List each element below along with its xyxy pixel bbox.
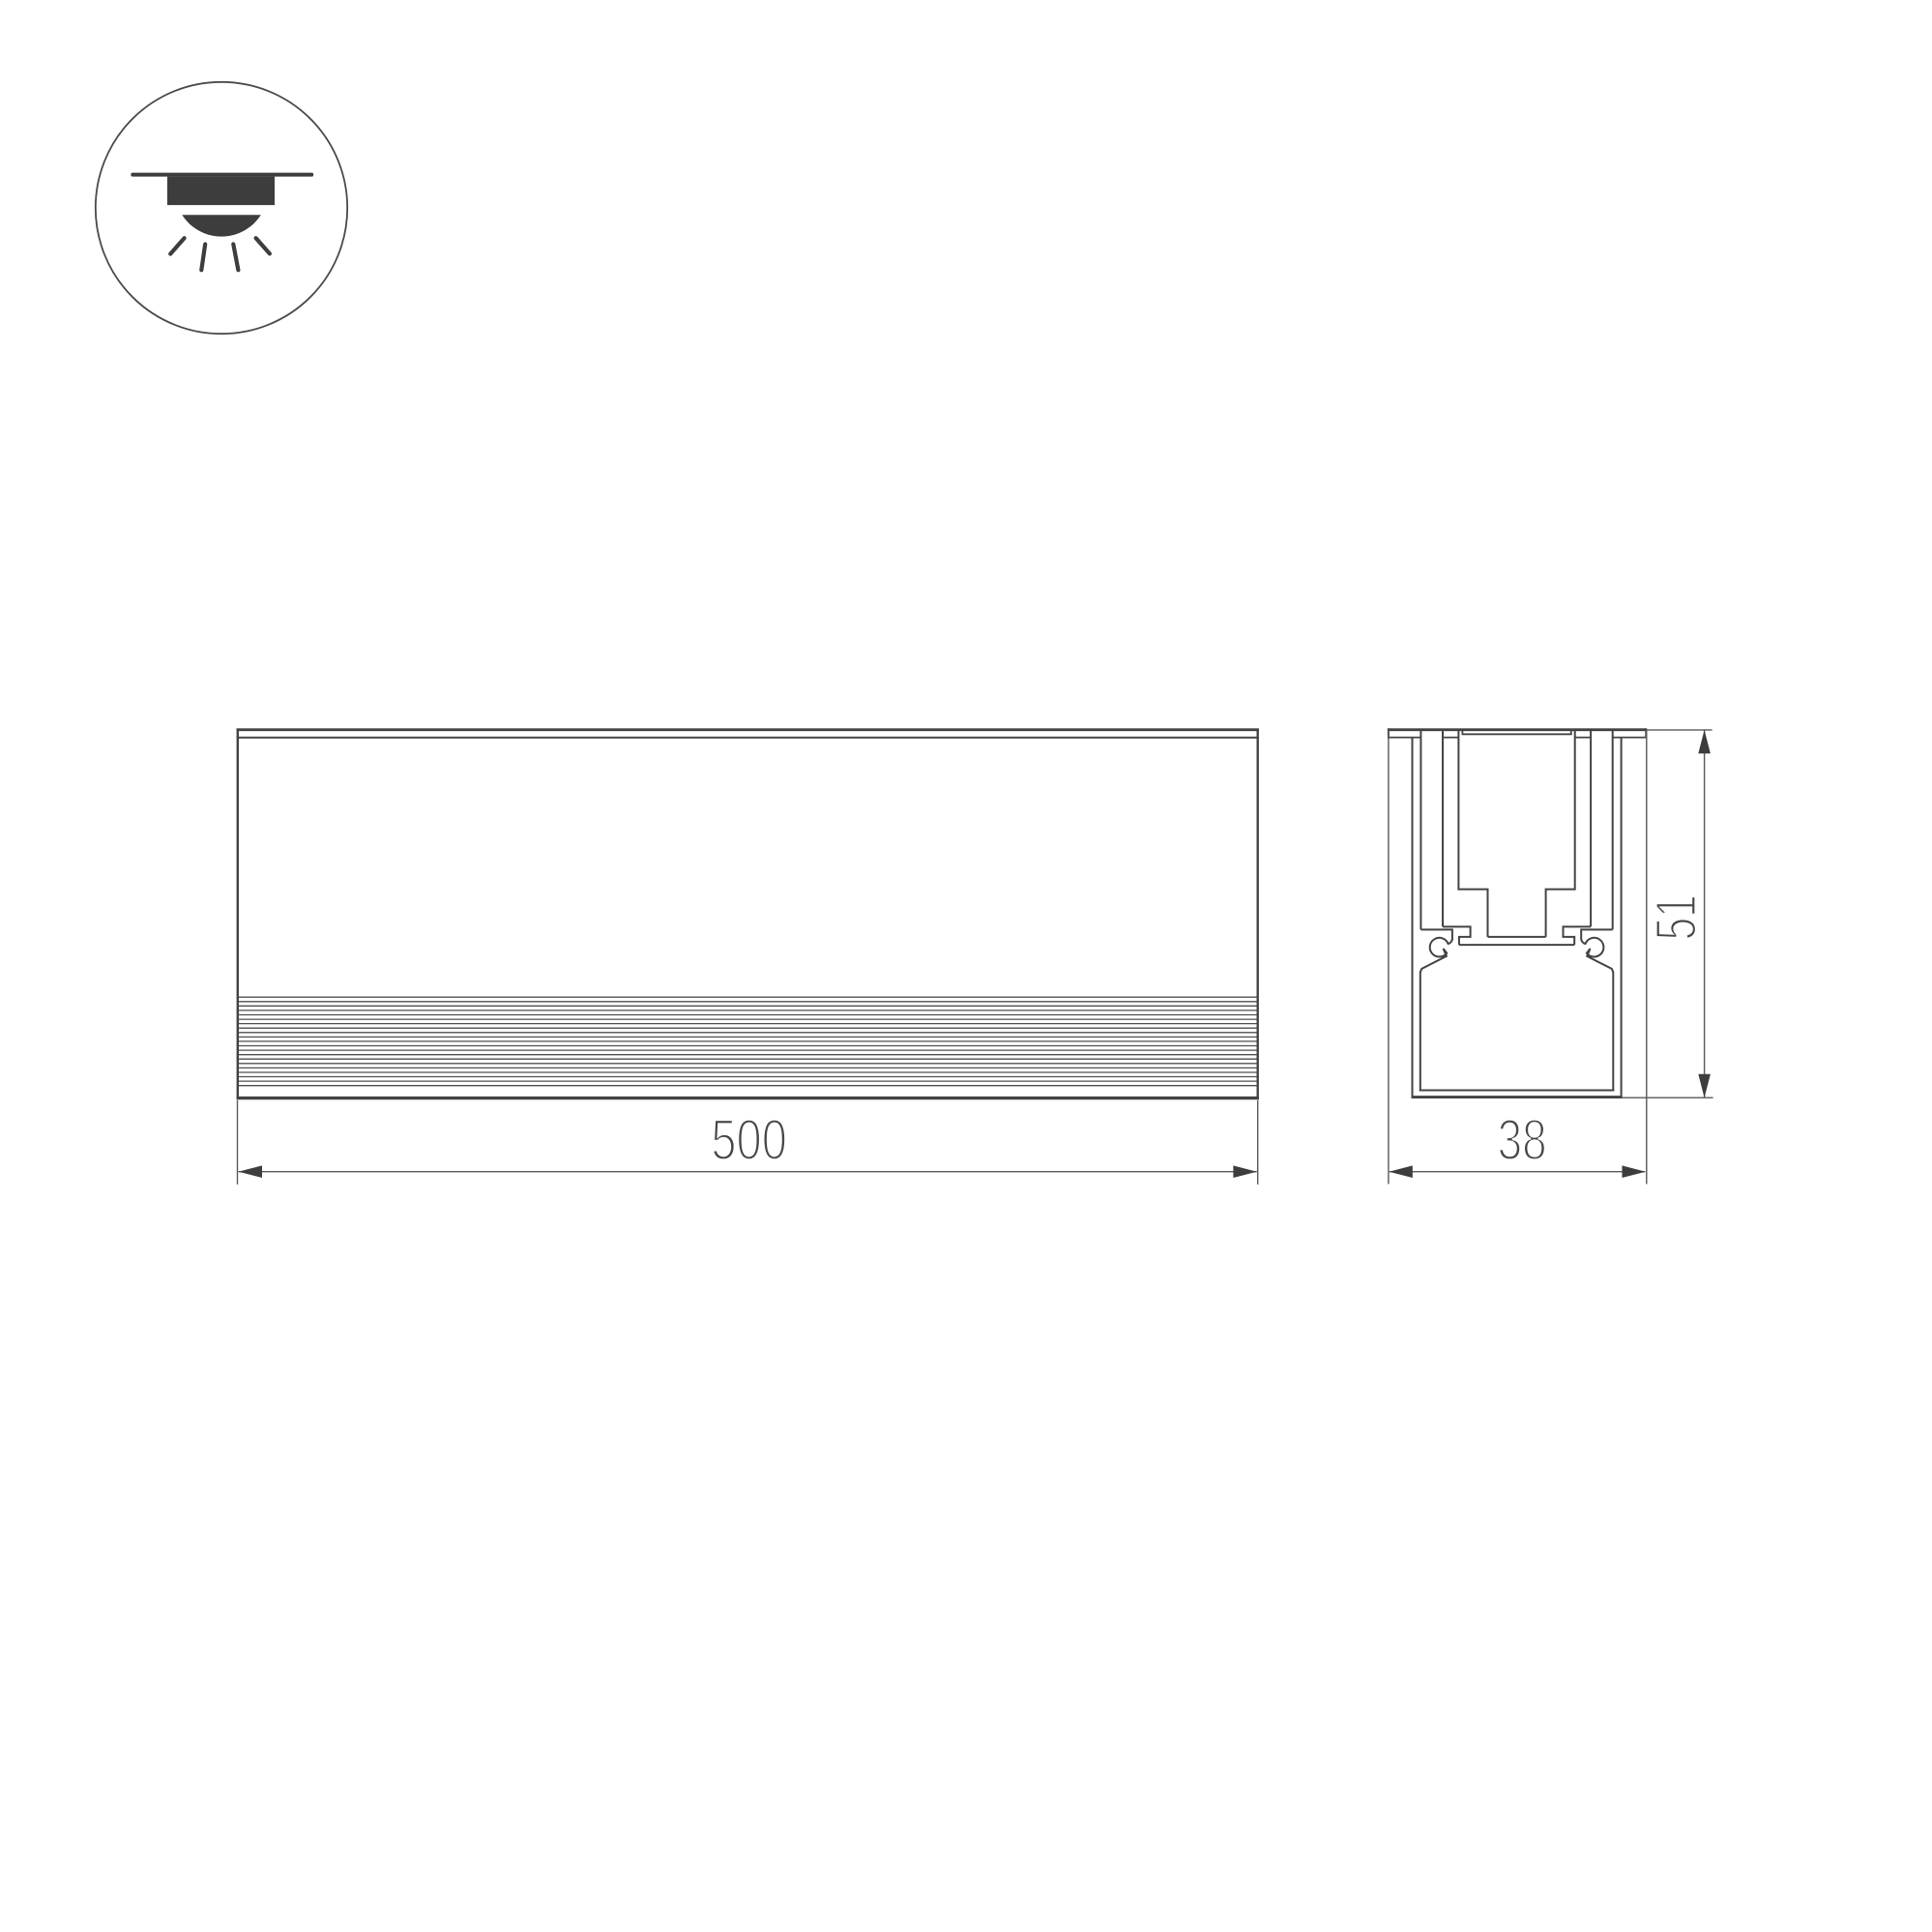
- svg-text:51: 51: [1645, 894, 1709, 940]
- svg-text:500: 500: [711, 1108, 787, 1172]
- svg-text:38: 38: [1498, 1108, 1547, 1172]
